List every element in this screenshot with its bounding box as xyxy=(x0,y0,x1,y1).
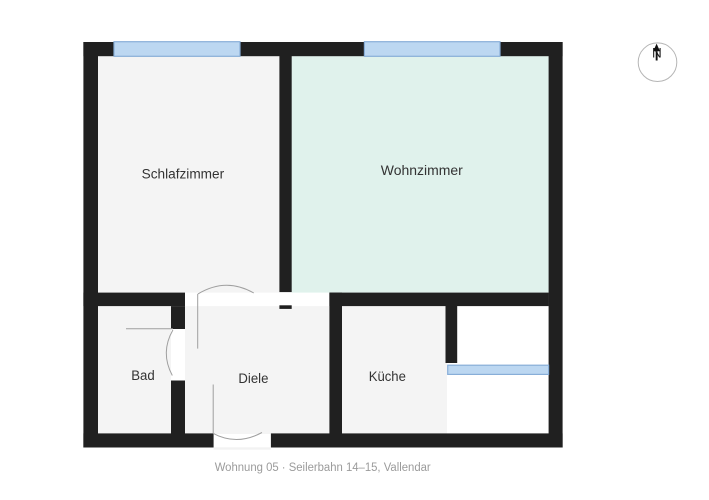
svg-text:Diele: Diele xyxy=(238,371,268,386)
svg-text:Wohnzimmer: Wohnzimmer xyxy=(381,163,464,178)
svg-text:Wohnung 05 · Seilerbahn 14–15,: Wohnung 05 · Seilerbahn 14–15, Vallendar xyxy=(215,462,431,474)
svg-text:Schlafzimmer: Schlafzimmer xyxy=(142,167,225,182)
svg-text:Küche: Küche xyxy=(369,369,406,384)
svg-text:Bad: Bad xyxy=(131,368,155,383)
